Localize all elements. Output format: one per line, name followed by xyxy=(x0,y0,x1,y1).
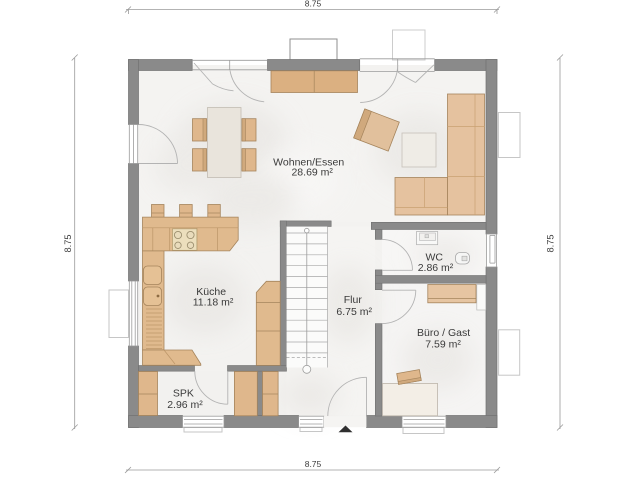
svg-text:2.96 m²: 2.96 m² xyxy=(167,399,203,411)
svg-text:8.75: 8.75 xyxy=(546,235,556,253)
svg-text:11.18 m²: 11.18 m² xyxy=(193,297,234,309)
svg-text:28.69 m²: 28.69 m² xyxy=(291,167,333,179)
svg-text:Büro / Gast: Büro / Gast xyxy=(417,327,470,339)
svg-text:2.86 m²: 2.86 m² xyxy=(418,262,454,274)
svg-text:SPK: SPK xyxy=(173,387,194,399)
svg-text:8.75: 8.75 xyxy=(305,0,322,9)
svg-text:Flur: Flur xyxy=(344,294,363,306)
svg-text:7.59 m²: 7.59 m² xyxy=(425,339,461,351)
svg-text:8.75: 8.75 xyxy=(63,235,73,253)
svg-text:8.75: 8.75 xyxy=(305,459,322,469)
svg-text:6.75 m²: 6.75 m² xyxy=(336,306,372,318)
